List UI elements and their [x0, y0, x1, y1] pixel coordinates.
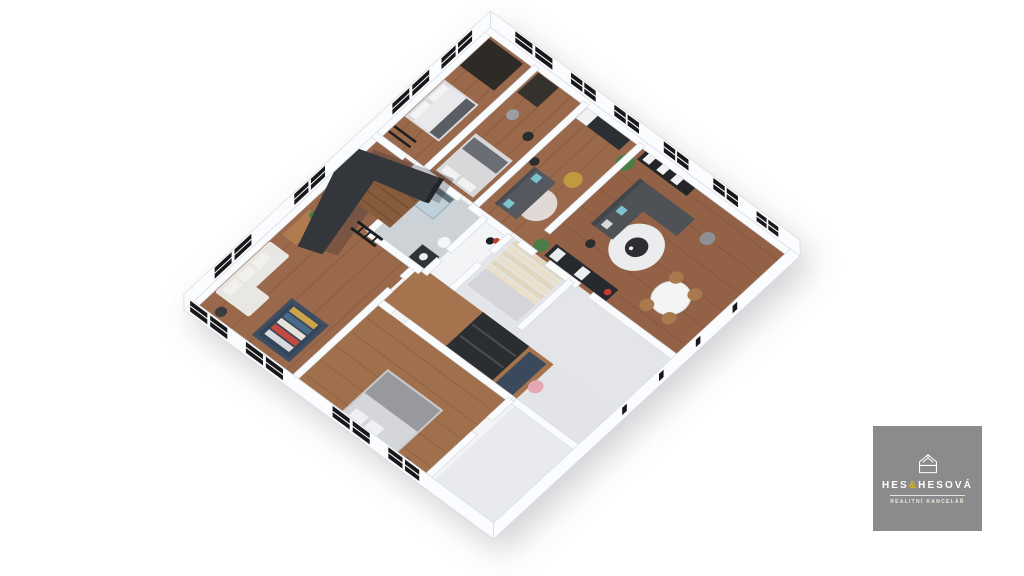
brand-logo: HES&HESOVÁ REALITNÍ KANCELÁŘ — [873, 426, 982, 531]
brand-tagline: REALITNÍ KANCELÁŘ — [890, 495, 965, 505]
house-outline-icon — [915, 452, 941, 475]
brand-pre: HES — [882, 480, 909, 491]
floor-plan-render — [0, 0, 1024, 576]
brand-post: HESOVÁ — [918, 480, 973, 491]
brand-ampersand: & — [909, 480, 918, 491]
render-canvas: HES&HESOVÁ REALITNÍ KANCELÁŘ — [0, 0, 1024, 576]
brand-title: HES&HESOVÁ — [882, 480, 973, 491]
floor-plan — [184, 27, 800, 539]
